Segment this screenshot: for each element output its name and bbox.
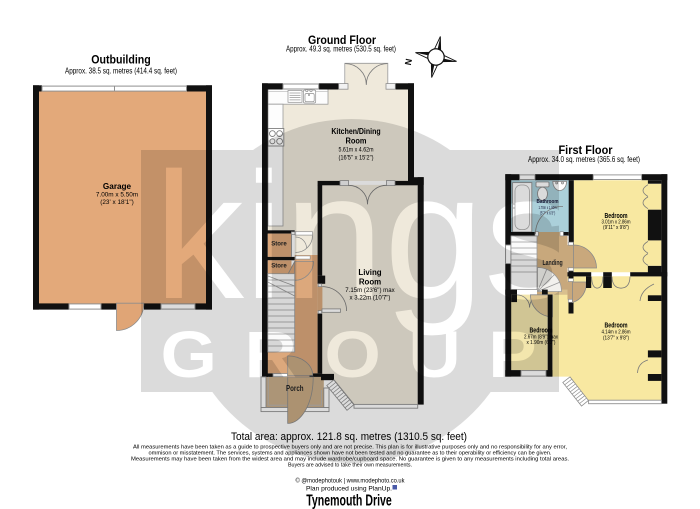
svg-text:(23' x 18'1"): (23' x 18'1") bbox=[100, 199, 133, 206]
svg-text:Plan produced using PlanUp.: Plan produced using PlanUp. bbox=[306, 486, 392, 493]
svg-text:7.00m x 5.50m: 7.00m x 5.50m bbox=[96, 192, 138, 199]
svg-text:Outbuilding: Outbuilding bbox=[91, 54, 151, 67]
svg-text:Tynemouth Drive: Tynemouth Drive bbox=[306, 493, 392, 509]
svg-text:Buyers are advised to take the: Buyers are advised to take their own mea… bbox=[288, 463, 412, 469]
svg-text:Bedroom: Bedroom bbox=[605, 321, 628, 330]
svg-text:(9'11" x 9'8"): (9'11" x 9'8") bbox=[603, 225, 629, 231]
svg-text:© @modephotouk | www.modephoto: © @modephotouk | www.modephoto.co.uk bbox=[296, 477, 406, 485]
svg-text:Garage: Garage bbox=[103, 182, 132, 191]
svg-text:Total area: approx. 121.8 sq.: Total area: approx. 121.8 sq. metres (13… bbox=[231, 431, 467, 443]
svg-text:Approx. 49.3 sq. metres (530.5: Approx. 49.3 sq. metres (530.5 sq. feet) bbox=[286, 45, 396, 54]
svg-text:Approx. 38.5 sq. metres (414.4: Approx. 38.5 sq. metres (414.4 sq. feet) bbox=[65, 67, 177, 76]
svg-text:(13'7" x 9'8"): (13'7" x 9'8") bbox=[603, 335, 629, 341]
